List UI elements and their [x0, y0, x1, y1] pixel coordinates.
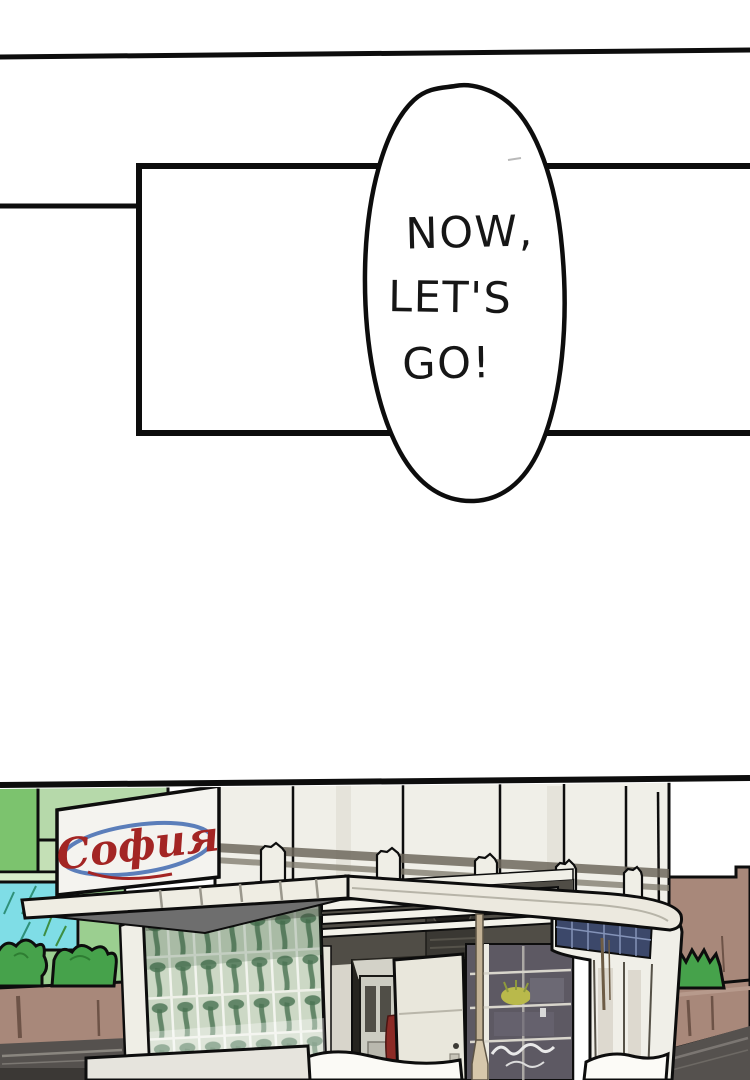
bottom-panel-scene: София [0, 780, 750, 1080]
corner-base [584, 1054, 668, 1080]
bubble-line-3: GO! [402, 338, 492, 390]
drum-seam [658, 792, 659, 918]
comic-page-canvas: NOW, LET'S GO! [0, 0, 750, 1080]
top-gutter-line [0, 50, 750, 57]
rust-streak [609, 940, 610, 1000]
comic-page: NOW, LET'S GO! [0, 0, 750, 1080]
bubble-line-1: NOW, [405, 206, 534, 259]
left-brown-wall [0, 982, 128, 1046]
bush-middle [52, 945, 116, 986]
speech-bubble: NOW, LET'S GO! [365, 85, 565, 501]
bubble-line-2: LET'S [388, 272, 513, 324]
green-building-block [0, 786, 38, 872]
bush-left [0, 940, 47, 986]
rust-streak [602, 938, 604, 1010]
door-handle [453, 1043, 459, 1049]
